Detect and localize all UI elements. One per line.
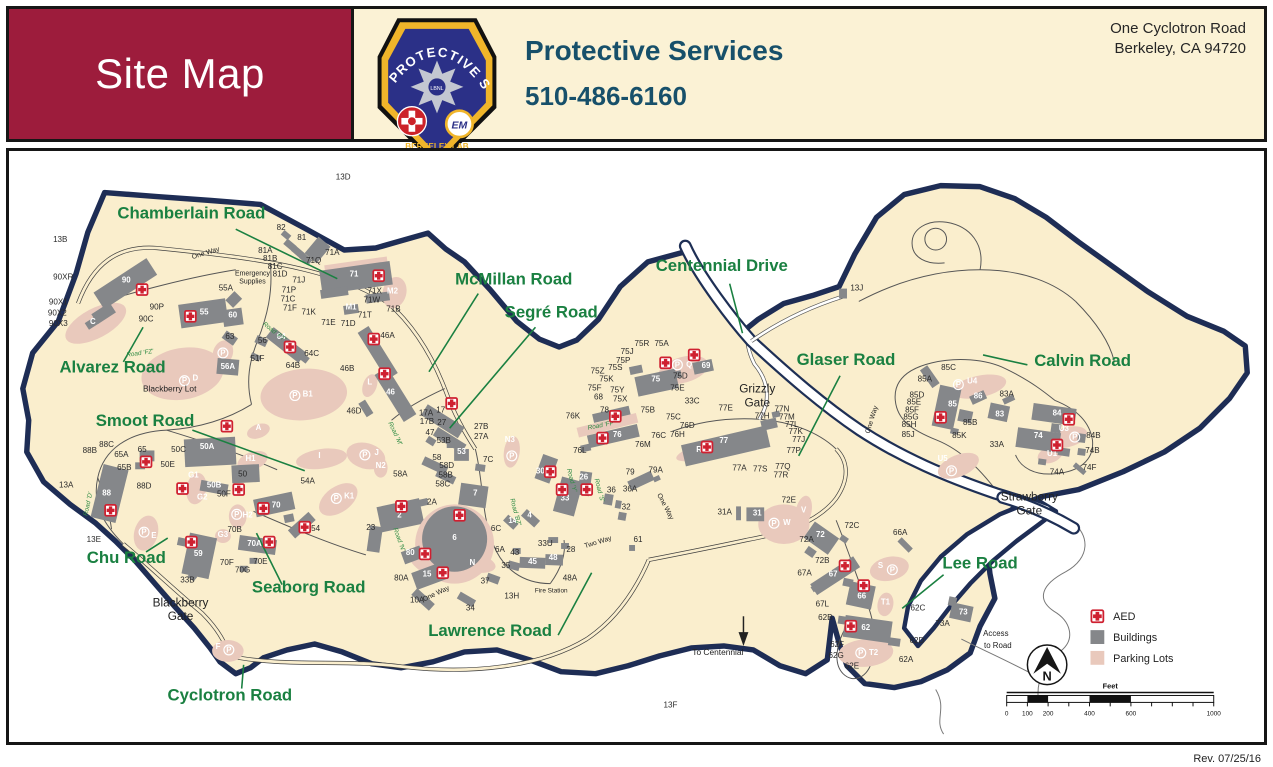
building-label: 71B [386,304,400,313]
header: Site Map PROTECTIVE SERVICES LBNL EM [6,6,1267,142]
building-label: 32 [622,502,631,511]
parking-p-icon: P [1072,433,1077,442]
building-label: 46A [380,331,395,340]
building-label: 6A [495,545,505,554]
building-number: 85 [948,399,957,408]
north-arrow-icon: N [1027,645,1066,685]
aed-icon [1052,440,1063,451]
aed-icon [597,433,608,444]
building-label: 54A [301,477,316,486]
building-label: 50F [217,489,231,498]
building-label: 13E [87,535,102,544]
building-label: 58A [393,470,408,479]
building-number: 59 [194,549,203,558]
building-label: 28 [566,545,575,554]
building-label: 71C [281,294,296,303]
building-label: 67L [816,599,830,608]
building-label: 75D [673,372,688,381]
parking-p-icon: P [956,380,961,389]
site-map[interactable]: Chamberlain RoadMcMillan RoadSegré RoadC… [9,151,1264,742]
building-label: 17 [436,405,445,414]
scale-tick-label: 600 [1126,710,1137,717]
building-label: 71W [363,295,380,304]
building-number: 48 [549,553,558,562]
building-number: 74 [1034,431,1043,440]
building-label: 77R [774,471,789,480]
north-label: N [1042,669,1051,684]
building-label: 70B [228,525,242,534]
building-label: 56 [258,336,267,345]
building-label: 90C [139,314,154,323]
address-line2: Berkeley, CA 94720 [1110,39,1246,59]
building-label: 13D [336,173,351,182]
parking-p-icon: P [949,466,954,475]
title-box: Site Map [6,6,354,142]
building-number: 67 [829,570,838,579]
building-label: 79A [649,466,664,475]
building-label: 74A [1050,468,1065,477]
building-label: 75S [608,363,623,372]
aed-icon [285,342,296,353]
scale-tick-label: 0 [1005,710,1009,717]
parking-p-icon: P [771,519,776,528]
aed-icon [105,505,116,516]
map-annotation: Emergency [235,271,270,278]
parking-p-icon: P [362,450,367,459]
road-label: McMillan Road [455,270,572,289]
building-label: 71J [292,276,305,285]
scale-tick-label: 100 [1022,710,1033,717]
parking-lot-label: E [151,531,156,540]
building-label: 70E [253,557,268,566]
building-label: 13H [504,591,519,600]
building-label: 75R [635,339,650,348]
building-label: 65 [138,445,147,454]
building-label: 76K [566,411,581,420]
parking-lot-label: S [878,561,883,570]
road-label: Cyclotron Road [167,685,292,704]
building-label: 2A [427,497,437,506]
road-label: Glaser Road [797,350,896,369]
building-label: 31A [718,507,733,516]
building-label: 81D [273,270,288,279]
map-annotation: to Road [984,641,1012,650]
building-label: 63 [225,332,234,341]
building-label: 76H [670,430,685,439]
road-label: Seaborg Road [252,577,366,596]
building-label: 71F [283,303,297,312]
road-label: Smoot Road [96,411,195,430]
aed-icon [299,522,310,533]
road-label: Calvin Road [1034,351,1131,370]
gate-label: Grizzly [739,382,775,396]
map-annotation: Supplies [239,279,266,286]
building-label: 27B [474,422,488,431]
parking-lot-label: D [192,374,198,383]
parking-lot-label: J [375,448,379,457]
building-label: 77Q [775,462,790,471]
building-number: 46 [386,388,395,397]
building-label: 88D [137,482,152,491]
building-label: 74F [1083,463,1097,472]
building-label: 62G [828,651,843,660]
aed-icon [610,411,621,422]
building-label: 71Q [306,256,321,265]
building-label: 33B [180,576,194,585]
parking-p-icon: P [890,565,895,574]
aed-icon [186,537,197,548]
building-label: 62C [911,603,926,612]
aed-icon [177,483,188,494]
building-label: 33U [538,539,553,548]
building-label: 75C [666,412,681,421]
building-label: 85A [918,375,933,384]
aed-icon [660,357,671,368]
building-label: 76C [651,431,666,440]
building-label: 90XR [53,273,73,282]
building-label: 90X3 [49,319,68,328]
building-label: 75B [641,405,655,414]
building-label: 70F [220,558,234,567]
aed-icon [1063,414,1074,425]
parking-lot-label: H1 [245,454,256,463]
building-label: 90X1 [49,297,68,306]
building-label: 71E [321,318,336,327]
building-label: 75E [670,384,685,393]
aed-icon [258,503,269,514]
org-phone: 510-486-6160 [525,81,783,112]
gate-label: Blackberry [153,595,209,609]
aed-icon [935,412,946,423]
building-label: 77P [787,446,801,455]
building-label: 13B [53,235,67,244]
aed-icon [581,484,592,495]
parking-lot-label: G1 [188,471,199,480]
building-number: 6 [452,533,457,542]
gate-label: Gate [168,609,194,623]
parking-lot-label: I [318,451,320,460]
building-label: 82 [277,223,286,232]
aed-icon [264,537,275,548]
building-label: 85J [902,430,915,439]
aed-icon [233,484,244,495]
building-number: 90 [122,276,131,285]
parking-p-icon: P [234,510,239,519]
parking-lot-label: M2 [387,287,399,296]
building-number: 77 [719,436,728,445]
building-label: 71D [341,319,356,328]
building-label: 67A [797,569,812,578]
aed-icon [141,456,152,467]
badge-em-text: EM [452,119,468,131]
building-number: 69 [702,361,711,370]
building-label: 75F [588,384,602,393]
aed-icon [420,548,431,559]
building-number: 53 [457,447,466,456]
aed-icon [379,368,390,379]
parking-p-icon: P [858,648,863,657]
gate-label: Strawberry [1001,489,1058,503]
map-annotation: Access [983,629,1008,638]
parking-lot-label: N3 [505,435,516,444]
building-label: 90X2 [48,308,67,317]
building-label: 88B [83,446,97,455]
aed-icon [702,442,713,453]
building-label: 47 [425,428,434,437]
building-label: 65B [117,463,131,472]
building-label: 34 [466,603,475,612]
building-label: 13F [664,700,678,709]
parking-lot-label: T2 [869,648,879,657]
building-number: 60 [228,310,237,319]
road-label: Lee Road [942,554,1017,573]
building-label: 50 [238,470,247,479]
parking-p-icon: P [509,451,514,460]
building-label: 17A [419,408,434,417]
building-number: 71 [350,270,359,279]
building-number: 7 [473,488,478,497]
building-label: 13J [850,284,863,293]
building-label: 81 [297,233,306,242]
building-label: 27A [474,432,489,441]
building-label: 58D [439,461,454,470]
building-label: 36 [607,486,616,495]
building-label: 62A [899,655,914,664]
scale-unit-label: Feet [1103,682,1119,691]
building-label: 68 [594,392,603,401]
building-label: 37 [481,577,490,586]
map-frame: Chamberlain RoadMcMillan RoadSegré RoadC… [6,148,1267,745]
gate-label: Gate [1017,503,1043,517]
parking-lot-label: H2 [243,510,254,519]
road-label: Alvarez Road [59,358,165,377]
building-label: 62B [818,613,832,622]
map-annotation: To Centennial [692,647,743,657]
protective-services-badge: PROTECTIVE SERVICES LBNL EM BERKELEY LAB [371,13,503,139]
building-number: 72 [816,530,825,539]
building-label: 48A [563,574,578,583]
building-label: 36A [623,485,638,494]
parking-lot-label: U4 [967,377,978,386]
parking-lot-label: N2 [376,461,387,470]
building-number: 86 [974,391,983,400]
building-label: 64C [304,349,319,358]
road-label: Chamberlain Road [117,203,265,222]
building-label: 72C [844,521,859,530]
building-number: 70 [272,500,281,509]
parking-p-icon: P [292,391,297,400]
building-label: 62F [830,640,844,649]
aed-icon [137,284,148,295]
building-number: 80 [406,548,415,557]
building-label: 62E [845,662,860,671]
building-number: 76 [613,430,622,439]
building-label: 72E [782,495,797,504]
site-map-page: Site Map PROTECTIVE SERVICES LBNL EM [0,0,1273,767]
building-number: 50B [207,481,222,490]
gate-label: Gate [744,395,770,409]
parking-lot-label: V [801,505,807,514]
building-label: 90P [150,302,164,311]
building-label: 72A [799,535,814,544]
building-label: 71X [368,287,383,296]
building-number: 88 [102,488,111,497]
legend-label: Parking Lots [1113,653,1174,665]
revision-note: Rev. 07/25/16 [1193,753,1261,765]
building-label: 78 [600,405,609,414]
building-number: 55 [200,307,209,316]
aed-icon [1091,610,1103,622]
road-label: Lawrence Road [428,621,552,640]
parking-legend-swatch [1090,651,1104,665]
parking-lot-label: T1 [881,597,891,606]
building-label: 33C [685,396,700,405]
building-number: 50A [200,442,215,451]
building-label: 75Y [610,386,625,395]
building-label: 76D [680,421,695,430]
building-label: 77A [732,464,747,473]
scale-tick-label: 200 [1043,710,1054,717]
building-label: 79 [626,468,635,477]
building-label: 85B [963,418,977,427]
building-label: 27 [437,418,446,427]
aed-icon [545,466,556,477]
aed-icon [858,580,869,591]
building-label: 85C [941,363,956,372]
building-label: 71P [282,286,296,295]
building-label: 77J [792,435,805,444]
building-label: 72B [815,556,829,565]
building-label: 71T [358,310,372,319]
parking-lot-label: K1 [344,491,355,500]
parking-lot-label: N [470,558,476,567]
building-label: 75J [621,347,634,356]
building-label: 35 [501,561,510,570]
aed-icon [185,311,196,322]
building-label: 88C [99,440,114,449]
building-label: 55A [219,284,234,293]
building-number: M1 [346,302,358,311]
building-label: 76M [635,440,651,449]
parking-lot-label: G2 [197,492,208,501]
building-label: 73A [935,619,950,628]
legend: AEDBuildingsParking Lots [1090,610,1173,665]
building-label: 51F [250,354,264,363]
building-label: 62D [910,636,925,645]
building-label: 53B [437,436,451,445]
building-number: 83 [995,409,1004,418]
aed-icon [373,270,384,281]
page-title: Site Map [95,50,265,98]
parking-p-icon: P [226,645,231,654]
scale-tick-label: 1000 [1207,710,1222,717]
building-number: 26 [579,473,588,482]
building-label: 43 [510,548,519,557]
building-label: 70G [235,566,250,575]
road-label: Centennial Drive [656,256,788,275]
aed-icon [846,621,857,632]
building-number: 75 [651,375,660,384]
parking-p-icon: P [675,360,680,369]
badge-center-text: LBNL [430,86,443,92]
building-label: 46B [340,364,354,373]
parking-lot-label: C [90,317,96,326]
building-number: 15 [423,570,432,579]
building-label: 85K [952,431,967,440]
parking-lot-label: B1 [303,389,314,398]
building-label: 74B [1085,446,1099,455]
building-number: 73 [959,607,968,616]
building-label: 77H [755,411,770,420]
parking-p-icon: P [334,494,339,503]
aed-icon [840,560,851,571]
parking-lot-label: F [216,642,221,651]
map-annotation: Fire Station [535,588,568,595]
aed-icon [446,398,457,409]
building-label: 54 [311,524,320,533]
building-label: 46D [347,406,362,415]
building-number: 62 [861,623,870,632]
building-label: 71K [302,307,317,316]
building-number: 4 [527,510,532,519]
aed-icon [557,484,568,495]
road-label: Chu Road [87,548,166,567]
building-label: 23 [366,523,375,532]
building-label: 58B [439,471,453,480]
building-label: 75X [613,394,628,403]
building-label: 50E [161,460,176,469]
aed-icon [396,501,407,512]
building-number: 70A [247,539,262,548]
parking-lot-label: U5 [938,454,949,463]
building-number: 84 [1053,408,1062,417]
building-number: 45 [528,557,537,566]
address: One Cyclotron Road Berkeley, CA 94720 [1110,19,1246,60]
aed-icon [689,349,700,360]
building-label: 75A [654,339,669,348]
building-label: 80A [394,574,409,583]
aed-icon [221,421,232,432]
building-label: 83A [1000,389,1015,398]
parking-lot-label: W [783,518,791,527]
parking-lot-label: G3 [218,530,229,539]
org-block: Protective Services 510-486-6160 [525,35,783,112]
building-label: 76L [573,446,587,455]
building-label: 71A [325,248,340,257]
aed-icon [437,567,448,578]
building-label: 7C [483,455,493,464]
building-legend-swatch [1090,630,1104,644]
building-label: 75K [599,375,614,384]
map-annotation: Blackberry Lot [143,384,197,394]
building-label: 66A [893,528,908,537]
building-label: 64B [286,361,300,370]
building-number: 56A [221,362,236,371]
building-label: 17B [420,417,434,426]
legend-label: AED [1113,611,1135,623]
parking-lot-label: L [367,378,372,387]
building-number: 31 [753,508,762,517]
road-label: Segré Road [505,302,598,321]
legend-label: Buildings [1113,632,1158,644]
building-label: 6C [491,524,501,533]
building-label: 77S [753,465,768,474]
parking-p-icon: P [141,528,146,537]
building-label: 50C [171,445,186,454]
scale-tick-label: 400 [1084,710,1095,717]
building-number: 66 [857,591,866,600]
building-label: 85H [902,420,917,429]
